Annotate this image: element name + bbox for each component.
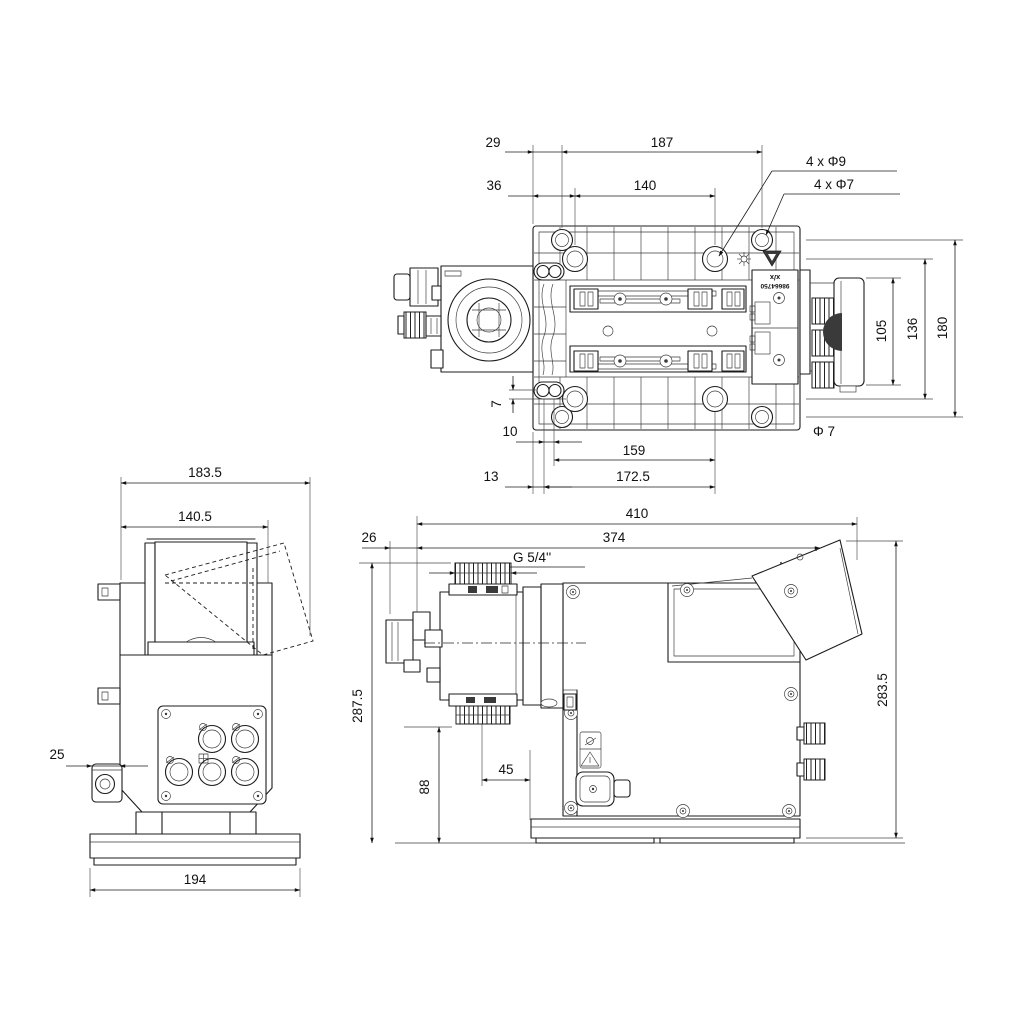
callout-phi7-label: 4 x Φ7 [814, 177, 854, 192]
dim-136-label: 136 [905, 318, 920, 341]
dim-172_5-label: 172.5 [616, 469, 650, 484]
side-latch [564, 694, 576, 710]
dim-7-label: 7 [489, 400, 504, 408]
warning-label [580, 732, 601, 768]
dim-36-label: 36 [486, 178, 501, 193]
dim-13-label: 13 [483, 469, 498, 484]
connector-panel [158, 706, 266, 804]
dim-287_5-label: 287.5 [350, 689, 365, 723]
control-panel-front [145, 539, 257, 658]
dim-187-label: 187 [651, 135, 674, 150]
callout-phi9-label: 4 x Φ9 [806, 154, 846, 169]
thread-size-label: G 5/4'' [513, 550, 551, 565]
technical-drawing-page: 98664750 x/x [0, 0, 1024, 1024]
dim-29-label: 29 [485, 135, 500, 150]
head-port-side [427, 668, 440, 682]
dim-45-label: 45 [498, 762, 513, 777]
gear-symbol-icon [737, 252, 751, 266]
adjustment-knobs-side [797, 723, 825, 780]
side-tab [98, 688, 120, 704]
nameplate-number: 98664750 [760, 282, 789, 289]
gland-assembly-top [394, 268, 441, 338]
side-tab [98, 584, 120, 600]
front-view: 183.5 140.5 25 194 [49, 465, 313, 897]
dim-140_5-label: 140.5 [178, 509, 212, 524]
nameplate-code: x/x [769, 273, 780, 282]
discharge-thread [455, 563, 511, 584]
base-side [531, 819, 800, 843]
knurled-knob [404, 312, 426, 338]
dim-105-label: 105 [874, 320, 889, 343]
gland-assembly-side [386, 612, 442, 672]
dim-194-label: 194 [184, 872, 207, 887]
dim-88-label: 88 [417, 779, 432, 794]
dim-183_5-label: 183.5 [188, 465, 222, 480]
dim-26-label: 26 [361, 530, 376, 545]
dosing-pump-dimensional-drawing: 98664750 x/x [0, 0, 1024, 1024]
dim-140-label: 140 [634, 178, 657, 193]
dim-25-label: 25 [49, 747, 64, 762]
drain-spout [541, 699, 557, 707]
side-view: 410 26 374 G 5/4'' 287.5 283.5 88 45 [350, 506, 905, 843]
label-phi7-hole: Φ 7 [813, 424, 835, 439]
pump-head-top [431, 266, 533, 372]
dim-410-label: 410 [626, 506, 649, 521]
dim-180-label: 180 [935, 317, 950, 340]
head-port [431, 350, 443, 368]
dim-10-label: 10 [502, 424, 517, 439]
base-front [90, 812, 300, 865]
drive-end-top [800, 270, 864, 392]
top-view: 98664750 x/x [394, 135, 963, 494]
dosing-head-side [386, 563, 586, 724]
dim-159-label: 159 [623, 443, 646, 458]
nameplate: 98664750 x/x [750, 270, 798, 384]
dim-283_5-label: 283.5 [875, 673, 890, 707]
dim-374-label: 374 [603, 530, 626, 545]
